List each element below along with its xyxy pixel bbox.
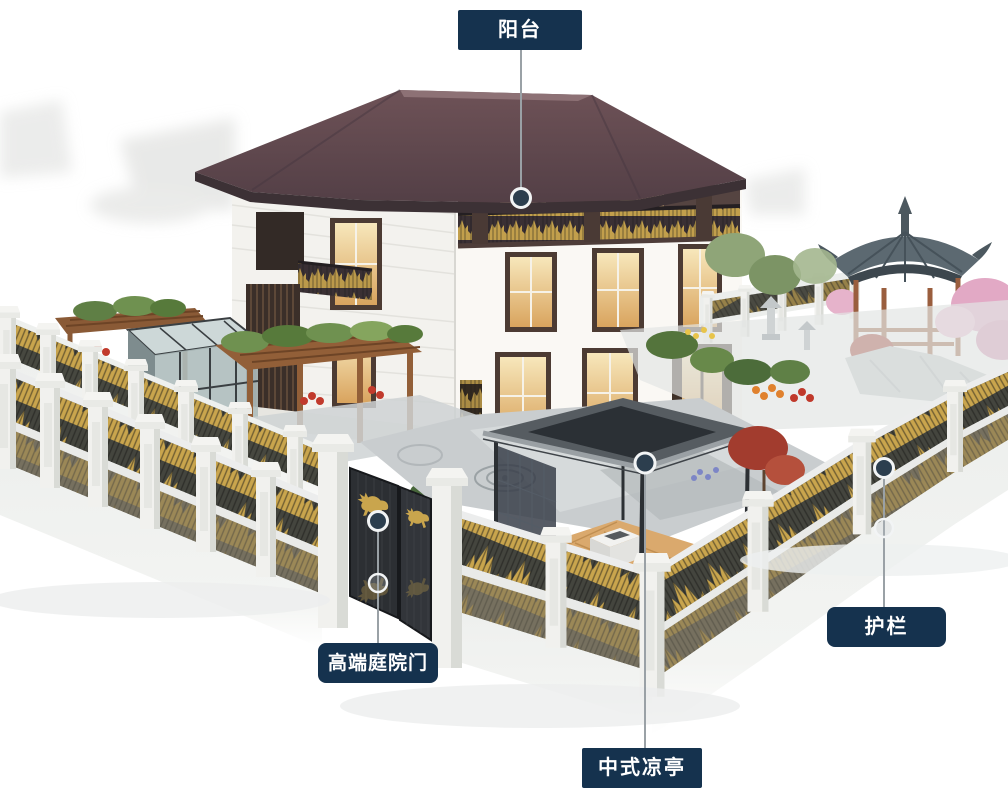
villa-roof bbox=[195, 90, 746, 214]
callout-label-guardrail: 护栏 bbox=[827, 607, 946, 647]
showcase-stage: 阳台 高端庭院门 中式凉亭 护栏 bbox=[0, 0, 1008, 800]
callout-label-pavilion: 中式凉亭 bbox=[582, 748, 702, 788]
callout-label-balcony: 阳台 bbox=[458, 10, 582, 50]
villa-windows-upper bbox=[505, 244, 722, 332]
callout-label-gate: 高端庭院门 bbox=[318, 643, 438, 683]
villa bbox=[195, 90, 746, 454]
courtyard-gate bbox=[312, 434, 468, 668]
scene-illustration bbox=[0, 0, 1008, 800]
